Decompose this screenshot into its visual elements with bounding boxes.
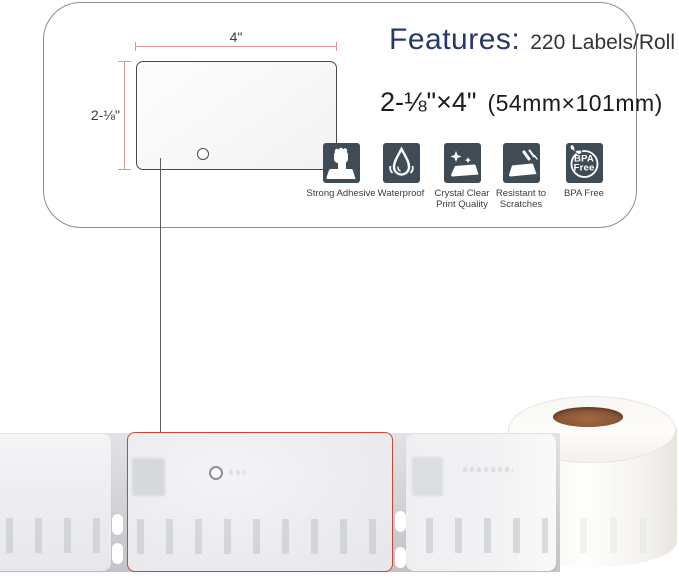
perforation-marks (6, 518, 103, 553)
width-dimension-label: 4" (196, 29, 276, 45)
height-dimension-label: 2-⅛" (82, 107, 120, 123)
height-dimension-cap-bottom (118, 169, 131, 170)
features-heading: Features: 220 Labels/Roll (389, 23, 675, 57)
label-hole-on-photo (209, 466, 223, 480)
faint-print-marking (463, 467, 513, 472)
liner-slot (112, 514, 123, 535)
adhesive-patch (132, 458, 165, 496)
scratched-label-icon (503, 143, 540, 183)
fist-on-label-icon (323, 143, 360, 183)
adhesive-patch (412, 457, 443, 496)
features-title: Features: (389, 23, 520, 57)
badge-label: BPA Free (564, 188, 604, 199)
size-metric: (54mm×101mm) (487, 90, 662, 117)
water-droplet-icon (383, 143, 420, 183)
bpa-free-stamp-icon: BPA Free (566, 143, 603, 183)
label-left-partial (0, 434, 111, 571)
width-dimension-tick-left (135, 42, 136, 51)
callout-line-vertical (160, 158, 161, 473)
height-dimension-cap-top (118, 61, 131, 62)
liner-slot (112, 543, 123, 564)
badge-bpa-free: BPA Free BPA Free (538, 143, 630, 199)
height-dimension-line (124, 61, 125, 170)
label-roll-core (553, 407, 623, 427)
width-dimension-line (135, 46, 337, 47)
butterfly-icon (566, 143, 583, 160)
width-dimension-tick-right (336, 42, 337, 51)
product-infographic: 4" 2-⅛" Features: 220 Labels/Roll 2-⅛"×4… (0, 0, 679, 578)
size-heading: 2-⅛"×4" (54mm×101mm) (380, 87, 663, 118)
liner-slot (395, 511, 406, 532)
label-right (406, 434, 556, 571)
perforation-marks (137, 519, 384, 554)
faint-print-marking (229, 470, 245, 475)
perforation-marks (426, 518, 548, 553)
label-highlighted (127, 432, 393, 572)
size-imperial: 2-⅛"×4" (380, 87, 476, 118)
spec-card: 4" 2-⅛" Features: 220 Labels/Roll 2-⅛"×4… (43, 2, 637, 228)
labels-per-roll: 220 Labels/Roll (530, 31, 675, 55)
label-hole-marker (197, 148, 209, 160)
liner-slot (395, 547, 406, 568)
